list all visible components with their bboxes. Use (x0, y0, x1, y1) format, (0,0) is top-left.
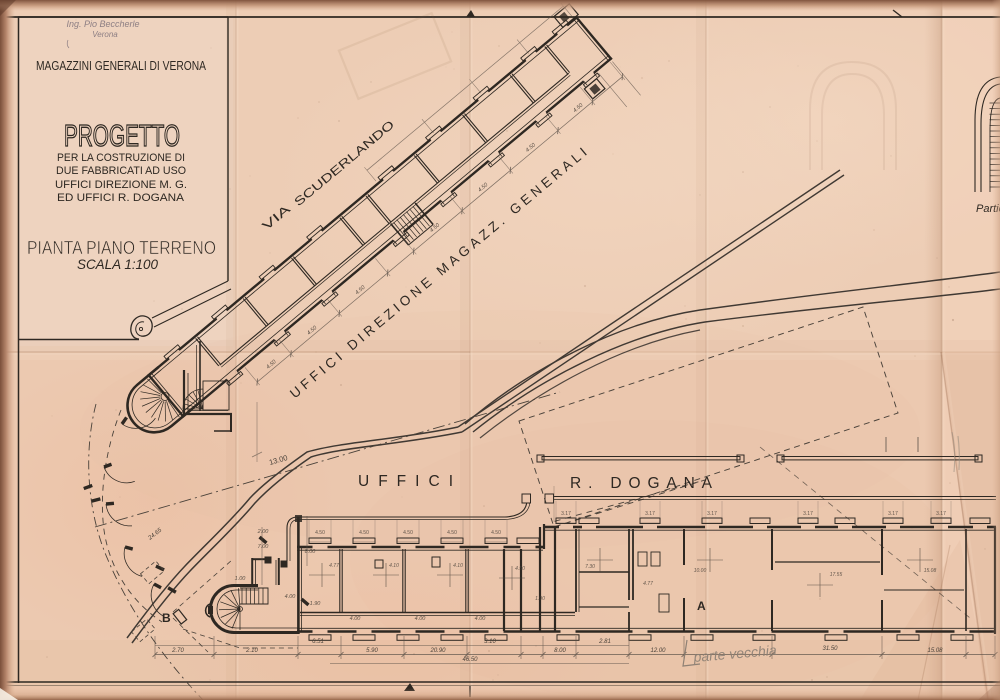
svg-text:3.10: 3.10 (484, 639, 496, 645)
svg-text:UFFICI DIREZIONE M. G.: UFFICI DIREZIONE M. G. (55, 179, 187, 191)
svg-text:4.50: 4.50 (447, 530, 457, 536)
svg-text:3.17: 3.17 (803, 511, 813, 517)
svg-text:2.81: 2.81 (598, 639, 611, 645)
svg-text:15.08: 15.08 (927, 648, 943, 654)
svg-text:4.77: 4.77 (643, 581, 653, 587)
svg-text:4.50: 4.50 (491, 530, 501, 536)
svg-text:4.50: 4.50 (315, 530, 325, 536)
svg-text:4.00: 4.00 (475, 616, 487, 622)
svg-text:PER LA COSTRUZIONE DI: PER LA COSTRUZIONE DI (57, 152, 185, 164)
svg-text:1.90: 1.90 (535, 596, 545, 602)
svg-text:DUE FABBRICATI AD USO: DUE FABBRICATI AD USO (56, 165, 186, 177)
svg-text:4.10: 4.10 (453, 563, 463, 569)
svg-text:12.00: 12.00 (650, 648, 666, 654)
svg-text:4.00: 4.00 (415, 616, 427, 622)
svg-text:3.17: 3.17 (936, 511, 946, 517)
svg-text:B: B (162, 611, 171, 625)
svg-text:2.00: 2.00 (257, 529, 270, 535)
svg-text:ED UFFICI R. DOGANA: ED UFFICI R. DOGANA (57, 192, 185, 204)
svg-text:31.50: 31.50 (822, 646, 838, 652)
svg-text:PIANTA PIANO TERRENO: PIANTA PIANO TERRENO (27, 237, 216, 258)
svg-text:1.90: 1.90 (310, 601, 322, 607)
svg-text:Ing. Pio Beccherle: Ing. Pio Beccherle (66, 19, 139, 29)
svg-text:7.00: 7.00 (258, 544, 270, 550)
svg-text:3.17: 3.17 (707, 511, 717, 517)
svg-text:4.10: 4.10 (389, 563, 399, 569)
svg-text:4.00: 4.00 (350, 616, 362, 622)
svg-text:4.50: 4.50 (403, 530, 413, 536)
svg-text:3.17: 3.17 (645, 511, 655, 517)
svg-text:46.50: 46.50 (462, 657, 478, 663)
svg-text:3.17: 3.17 (561, 511, 571, 517)
svg-text:2.70: 2.70 (171, 648, 184, 654)
svg-text:MAGAZZINI GENERALI DI VERONA: MAGAZZINI GENERALI DI VERONA (36, 59, 207, 73)
svg-text:4.00: 4.00 (285, 594, 297, 600)
svg-text:20.90: 20.90 (429, 648, 446, 654)
svg-text:5.90: 5.90 (366, 648, 378, 654)
svg-text:A: A (697, 599, 706, 613)
svg-text:2.10: 2.10 (245, 648, 258, 654)
svg-text:4.50: 4.50 (515, 566, 525, 572)
svg-text:3.17: 3.17 (888, 511, 898, 517)
svg-text:8.00: 8.00 (554, 648, 566, 654)
svg-text:PROGETTO: PROGETTO (64, 119, 180, 153)
svg-text:15.08: 15.08 (924, 568, 937, 574)
svg-text:8.00: 8.00 (305, 549, 317, 555)
svg-text:4.50: 4.50 (359, 530, 369, 536)
svg-text:10.00: 10.00 (694, 568, 707, 574)
svg-text:7.30: 7.30 (585, 564, 595, 570)
svg-text:17.55: 17.55 (830, 572, 843, 578)
svg-text:4.77: 4.77 (329, 563, 339, 569)
svg-text:Verona: Verona (92, 30, 118, 39)
svg-text:6.51: 6.51 (312, 639, 324, 645)
svg-text:1.00: 1.00 (235, 576, 247, 582)
svg-text:SCALA 1:100: SCALA 1:100 (77, 257, 158, 272)
